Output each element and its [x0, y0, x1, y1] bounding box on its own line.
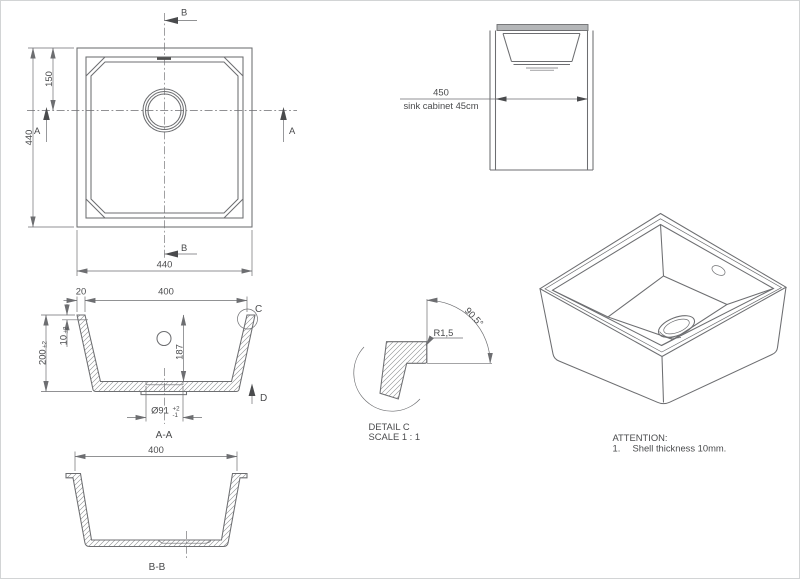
- bowl-wall-edges-iso: [553, 225, 774, 346]
- drain-inner-ellipse-iso: [662, 316, 692, 337]
- section-a-right-arrow-icon: [280, 107, 287, 120]
- note-item-number: 1.: [613, 443, 621, 454]
- countertop-slab: [497, 25, 588, 31]
- drain-boss-lines: [526, 68, 558, 70]
- rim-mid-edge-iso: [545, 219, 782, 352]
- section-b-top-label: B: [181, 7, 187, 18]
- top-extension-lines: [77, 297, 247, 313]
- body-front-corner-iso: [662, 357, 664, 403]
- note-item-text: Shell thickness 10mm.: [633, 443, 727, 454]
- notes-title: ATTENTION:: [613, 432, 668, 443]
- dim-height-label: 440: [23, 130, 34, 146]
- section-aa-title: A-A: [156, 430, 173, 441]
- sink-bowl-hidden-outline: [503, 31, 581, 65]
- section-a-right-label: A: [289, 125, 296, 136]
- dim-inner-width-label: 400: [158, 286, 174, 297]
- dim-cabinet-width-label: 450: [433, 87, 449, 98]
- section-bb-title: B-B: [149, 562, 166, 573]
- page-border: [1, 1, 800, 579]
- section-a-a-view: 20 400 200±2 10±2 187 Ø91 +2 -1 C D A-A: [37, 286, 268, 442]
- d-arrow-icon: [249, 384, 256, 397]
- technical-drawing-page: B B A A 440 150 440 450 sink cabinet 45c…: [0, 0, 800, 579]
- dim-rim-label: 20: [76, 286, 86, 297]
- isometric-view: [540, 214, 786, 404]
- dim-drain-dia-label: Ø91: [151, 405, 169, 416]
- section-aa-cut-body: [77, 315, 255, 392]
- d-arrow-label: D: [260, 393, 267, 404]
- section-bb-cut-body: [66, 474, 247, 547]
- overflow-hole-iso: [710, 264, 726, 278]
- section-a-left-label: A: [34, 125, 41, 136]
- section-b-bottom-arrow-icon: [165, 251, 179, 258]
- dim-drain-tol-minus: -1: [173, 412, 179, 419]
- drawing-canvas: B B A A 440 150 440 450 sink cabinet 45c…: [0, 0, 800, 579]
- cabinet-caption: sink cabinet 45cm: [403, 100, 478, 111]
- section-b-top-arrow-icon: [165, 17, 179, 24]
- section-b-bottom-label: B: [181, 242, 187, 253]
- cabinet-front-view: 450 sink cabinet 45cm: [400, 25, 593, 171]
- dim-width-label: 440: [157, 259, 173, 270]
- overflow-hole: [157, 332, 171, 346]
- rim-inner-edge-iso: [553, 225, 774, 346]
- top-plan-view: B B A A 440 150 440: [23, 7, 297, 277]
- detail-c-scale: SCALE 1 : 1: [369, 431, 421, 442]
- rim-corner-section: [380, 342, 427, 399]
- detail-c-callout-label: C: [255, 304, 262, 315]
- dim-depth-label: 187: [174, 344, 185, 360]
- dim-bb-width-label: 400: [148, 444, 164, 455]
- dim-radius-label: R1,5: [434, 327, 454, 338]
- section-a-left-arrow-icon: [43, 107, 50, 120]
- cabinet-dim-arrow-right-icon: [577, 96, 588, 101]
- dim-drain-offset-label: 150: [43, 71, 54, 87]
- detail-c-view: 90.5° R1,5 DETAIL C SCALE 1 : 1: [354, 299, 492, 442]
- dim-angle-label: 90.5°: [463, 305, 486, 329]
- dim-shell-label: 10±2: [58, 326, 70, 345]
- notes-block: ATTENTION: 1. Shell thickness 10mm.: [613, 432, 727, 454]
- cabinet-dim-arrow-left-icon: [496, 96, 507, 101]
- dim-aa-height-label: 200±2: [37, 340, 49, 365]
- section-b-b-view: 400 B-B: [66, 444, 247, 573]
